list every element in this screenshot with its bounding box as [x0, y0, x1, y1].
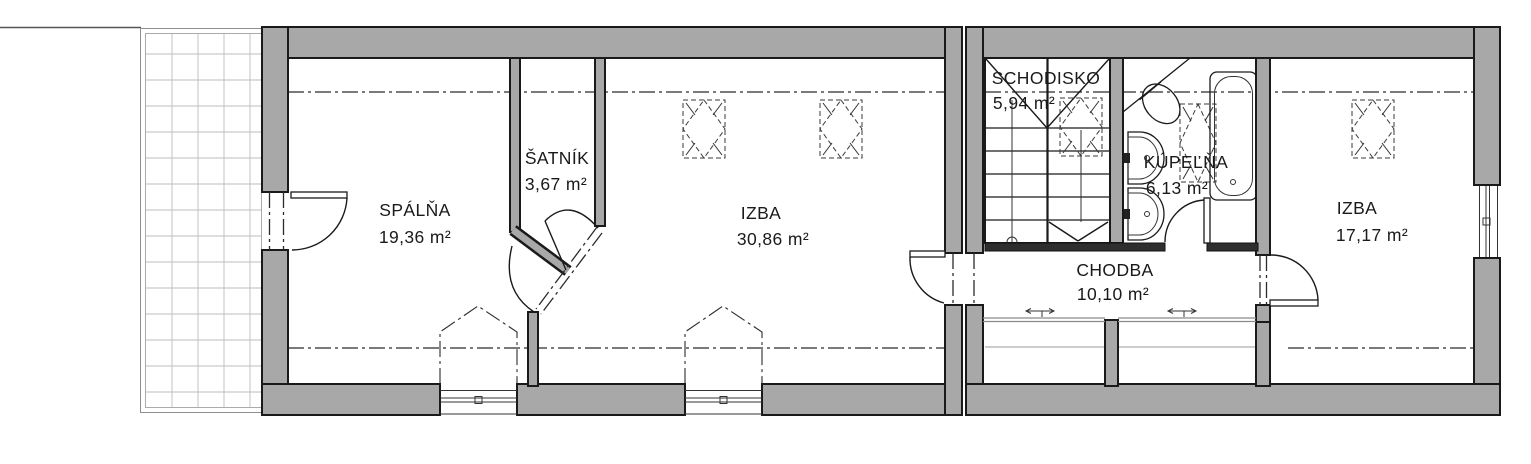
room2-side-window — [1474, 185, 1500, 258]
room-label-satnik: ŠATNÍK — [525, 147, 589, 168]
wardrobe-wall-left — [510, 58, 520, 232]
room-area-kupelna: 6,13 m² — [1146, 178, 1208, 198]
room-area-schodisko: 5,94 m² — [993, 93, 1055, 113]
wall-right-upper — [1474, 27, 1500, 185]
bathroom-room-wall — [1256, 58, 1270, 255]
room-window — [685, 384, 762, 415]
room-area-satnik: 3,67 m² — [525, 174, 587, 194]
room-label-izba-velka: IZBA — [741, 203, 782, 223]
room-area-chodba: 10,10 m² — [1077, 284, 1149, 304]
wardrobe-wall-right — [595, 58, 605, 226]
loggia-pier-middle — [1105, 320, 1118, 386]
room-label-chodba: CHODBA — [1076, 260, 1153, 280]
room-area-izba-velka: 30,86 m² — [737, 229, 809, 249]
room-label-spalna: SPÁLŇA — [379, 200, 450, 220]
hall-top-wall-b — [1207, 243, 1258, 251]
wall-bottom-c — [762, 384, 962, 415]
hall-room-wall-stub — [1256, 305, 1270, 322]
party-wall-left-lower — [945, 305, 962, 415]
bedroom-divider-stub — [528, 312, 538, 386]
party-wall-right-upper — [966, 27, 983, 253]
bedroom-window — [440, 384, 517, 415]
floor-plan-page: SPÁLŇA 19,36 m² ŠATNÍK 3,67 m² IZBA 30,8… — [0, 0, 1531, 464]
room-area-spalna: 19,36 m² — [379, 227, 451, 247]
wall-bottom-b — [517, 384, 685, 415]
loggia-pier-right — [1256, 320, 1270, 386]
wall-bottom-a — [262, 384, 440, 415]
room-area-izba-mala: 17,17 m² — [1336, 225, 1408, 245]
wall-top-left-unit — [262, 27, 962, 58]
floor-plan-svg: SPÁLŇA 19,36 m² ŠATNÍK 3,67 m² IZBA 30,8… — [0, 0, 1531, 464]
party-wall-left-upper — [945, 27, 962, 253]
stair-bathroom-wall — [1110, 58, 1123, 243]
room-label-izba-mala: IZBA — [1337, 198, 1378, 218]
room-label-kupelna: KÚPEĽŇA — [1144, 151, 1229, 172]
wall-top-right-unit — [966, 27, 1500, 58]
room-label-schodisko: SCHODISKO — [992, 68, 1101, 88]
wall-left-upper — [262, 27, 288, 192]
hall-top-wall-a — [985, 243, 1165, 251]
wall-bottom-right-unit — [966, 384, 1500, 415]
